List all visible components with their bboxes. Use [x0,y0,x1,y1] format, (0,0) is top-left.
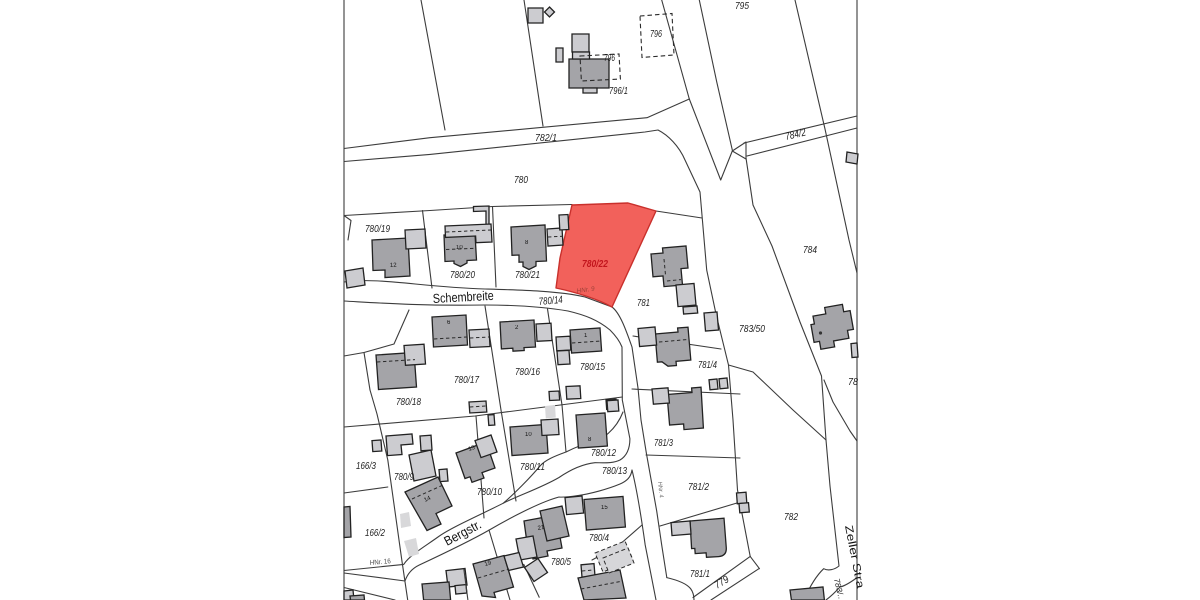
svg-text:780/16: 780/16 [515,366,540,378]
svg-text:781/3: 781/3 [654,437,673,449]
svg-text:15: 15 [601,505,608,511]
svg-text:166/2: 166/2 [365,527,385,539]
svg-text:780/21: 780/21 [515,269,540,281]
svg-text:796/1: 796/1 [609,85,628,97]
svg-text:783/50: 783/50 [739,323,765,335]
svg-text:780/15: 780/15 [580,361,605,373]
svg-text:10: 10 [525,432,532,438]
svg-text:780/20: 780/20 [450,269,475,281]
svg-text:781/2: 781/2 [688,481,709,493]
svg-text:78: 78 [848,376,858,388]
svg-text:10: 10 [456,245,463,251]
svg-text:782: 782 [784,511,798,523]
svg-text:780/4: 780/4 [589,532,609,544]
svg-text:780: 780 [514,174,528,186]
svg-text:780/5: 780/5 [551,556,571,568]
svg-text:780/18: 780/18 [396,396,421,408]
svg-text:795: 795 [735,0,749,12]
svg-text:780/9: 780/9 [394,471,414,483]
svg-text:796: 796 [650,28,662,40]
svg-text:781/1: 781/1 [690,568,710,580]
svg-text:780/11: 780/11 [520,461,545,473]
svg-text:782/1: 782/1 [535,132,557,144]
svg-text:780/12: 780/12 [591,447,616,459]
svg-text:780/14: 780/14 [538,294,563,308]
svg-text:781: 781 [637,297,650,309]
svg-text:781/4: 781/4 [698,359,717,371]
svg-text:784: 784 [803,244,817,256]
svg-text:12: 12 [390,263,398,269]
svg-text:780/10: 780/10 [477,486,502,498]
svg-text:796: 796 [604,52,615,64]
svg-text:780/17: 780/17 [454,374,480,386]
svg-text:166/3: 166/3 [356,460,376,472]
svg-text:780/22: 780/22 [582,258,608,270]
svg-text:Schembreite: Schembreite [432,288,494,306]
svg-text:780/19: 780/19 [365,223,390,235]
svg-text:780/13: 780/13 [602,465,627,477]
